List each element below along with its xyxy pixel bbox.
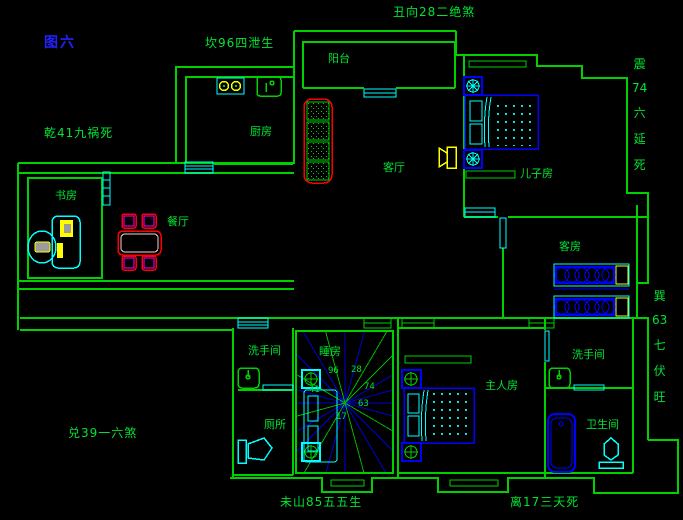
annotation-southwest: 兑39一六煞 — [68, 427, 137, 440]
sofa — [304, 99, 332, 183]
room-label-study: 书房 — [55, 189, 77, 202]
compass-number: 28 — [351, 366, 362, 375]
tv-icon — [439, 147, 456, 168]
room-label-balcony: 阳台 — [328, 52, 350, 65]
annotation-northwest: 乾41九祸死 — [44, 127, 113, 140]
annotation-east-vertical: 震 74 六 延 死 — [632, 55, 647, 173]
fengshui-compass — [250, 308, 440, 498]
master-shelf — [405, 356, 471, 363]
kitchen-sink-icon — [257, 77, 281, 96]
room-label-kitchen: 厨房 — [250, 125, 272, 138]
ceiling-fan-icon — [464, 77, 482, 95]
washroom-sink-icon — [549, 368, 570, 388]
annotation-northeast: 丑向28二绝煞 — [393, 6, 475, 19]
room-label-bathroom: 卫生间 — [586, 418, 619, 431]
room-label-toilet: 厕所 — [264, 418, 286, 431]
guest-beds — [554, 264, 629, 318]
toilet-icon — [238, 438, 272, 463]
stove-icon — [217, 78, 244, 94]
room-label-son: 儿子房 — [520, 167, 553, 180]
bathtub-icon — [548, 414, 575, 472]
toilet-icon — [599, 438, 623, 468]
compass-number: 41 — [309, 386, 320, 395]
floorplan-drawing — [0, 0, 683, 520]
study-desk — [52, 216, 80, 268]
annotation-south-left: 未山85五五生 — [280, 496, 362, 509]
ceiling-fan-icon — [402, 443, 421, 461]
dining-chairs — [122, 214, 156, 270]
room-label-master: 主人房 — [485, 379, 518, 392]
cad-floorplan-canvas: 图六 坎96四泄生 丑向28二绝煞 乾41九祸死 兑39一六煞 未山85五五生 … — [0, 0, 683, 520]
room-label-washroom-right: 洗手间 — [572, 348, 605, 361]
annotation-north: 坎96四泄生 — [205, 37, 274, 50]
compass-number: 17 — [336, 413, 347, 422]
room-label-washroom-left: 洗手间 — [248, 344, 281, 357]
dining-table — [118, 231, 161, 255]
ceiling-fan-icon — [402, 370, 421, 388]
ceiling-fan-icon — [464, 150, 482, 168]
master-bed — [404, 388, 474, 443]
room-label-guest: 客房 — [559, 240, 581, 253]
washroom-sink-icon — [238, 368, 259, 388]
ceiling-fan-icon — [302, 443, 320, 461]
room-label-sleep: 睡房 — [319, 345, 341, 358]
annotation-southeast-vertical: 巽 63 七 伏 旺 — [652, 287, 667, 405]
son-bed — [465, 95, 538, 149]
annotation-south-right: 离17三天死 — [510, 496, 579, 509]
room-label-living: 客厅 — [383, 161, 405, 174]
compass-number: 74 — [364, 383, 375, 392]
figure-title: 图六 — [44, 37, 76, 50]
compass-number: 96 — [328, 367, 339, 376]
walls — [18, 31, 678, 493]
room-label-dining: 餐厅 — [167, 215, 189, 228]
compass-number: 63 — [358, 400, 369, 409]
